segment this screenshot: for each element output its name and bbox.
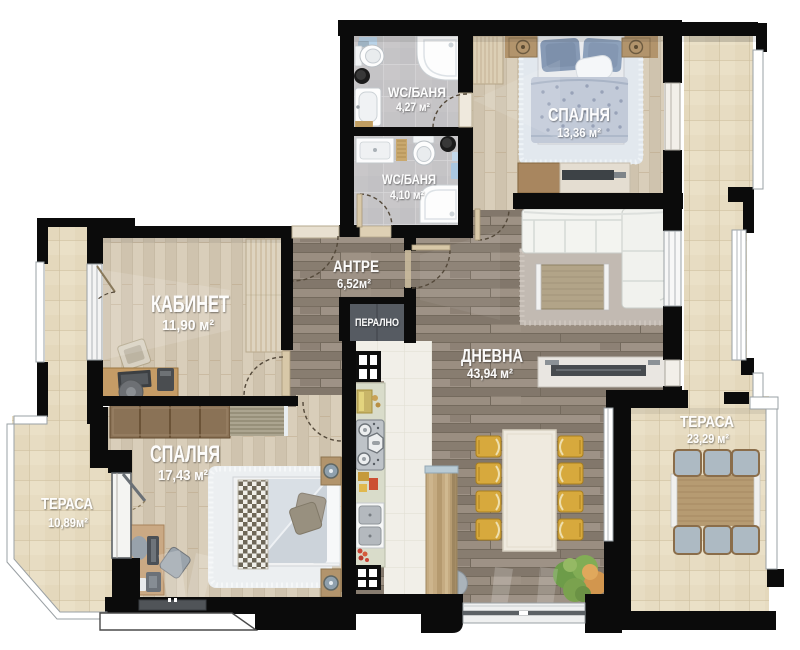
svg-text:КАБИНЕТ: КАБИНЕТ <box>151 291 229 318</box>
svg-text:ТЕРАСА: ТЕРАСА <box>680 414 734 431</box>
svg-text:WC/БАНЯ: WC/БАНЯ <box>388 84 446 100</box>
svg-text:17,43 м²: 17,43 м² <box>158 467 208 484</box>
svg-text:WC/БАНЯ: WC/БАНЯ <box>382 171 436 187</box>
svg-text:43,94 м²: 43,94 м² <box>467 366 513 381</box>
svg-text:ТЕРАСА: ТЕРАСА <box>41 496 93 513</box>
svg-text:СПАЛНЯ: СПАЛНЯ <box>548 105 610 125</box>
svg-text:ДНЕВНА: ДНЕВНА <box>461 346 523 366</box>
svg-text:4,10 м²: 4,10 м² <box>390 190 424 202</box>
svg-text:13,36 м²: 13,36 м² <box>557 125 602 140</box>
svg-text:АНТРЕ: АНТРЕ <box>333 257 379 276</box>
svg-text:СПАЛНЯ: СПАЛНЯ <box>150 441 220 468</box>
svg-text:10,89м²: 10,89м² <box>48 516 88 530</box>
svg-text:ПЕРАЛНО: ПЕРАЛНО <box>355 317 399 329</box>
svg-text:11,90 м²: 11,90 м² <box>162 317 214 334</box>
svg-text:6,52м²: 6,52м² <box>337 277 371 291</box>
svg-text:4,27 м²: 4,27 м² <box>396 102 430 114</box>
svg-text:23,29 м²: 23,29 м² <box>687 432 729 446</box>
